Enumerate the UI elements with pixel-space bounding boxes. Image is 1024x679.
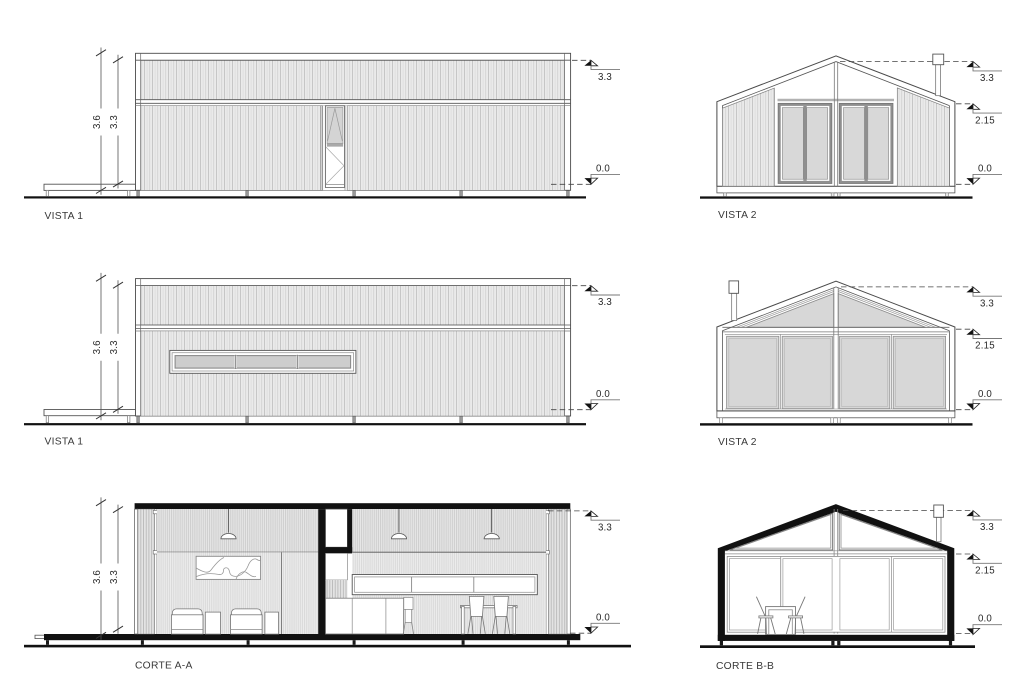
svg-text:CORTE A-A: CORTE A-A <box>135 661 193 672</box>
svg-text:CORTE B-B: CORTE B-B <box>716 661 774 672</box>
svg-text:VISTA 2: VISTA 2 <box>718 210 757 221</box>
svg-text:3.6: 3.6 <box>92 340 103 354</box>
svg-text:0.0: 0.0 <box>596 163 610 174</box>
svg-text:VISTA 1: VISTA 1 <box>45 437 84 448</box>
svg-text:3.6: 3.6 <box>92 115 103 129</box>
svg-text:3.6: 3.6 <box>92 570 103 584</box>
svg-text:0.0: 0.0 <box>596 612 610 623</box>
svg-text:3.3: 3.3 <box>598 72 612 83</box>
svg-text:3.3: 3.3 <box>980 522 994 533</box>
svg-text:0.0: 0.0 <box>978 389 992 400</box>
svg-text:VISTA 2: VISTA 2 <box>718 437 757 448</box>
svg-text:0.0: 0.0 <box>978 163 992 174</box>
svg-text:3.3: 3.3 <box>980 73 994 84</box>
svg-text:3.3: 3.3 <box>980 298 994 309</box>
svg-text:2.15: 2.15 <box>975 341 995 352</box>
svg-text:3.3: 3.3 <box>598 522 612 533</box>
svg-text:VISTA 1: VISTA 1 <box>45 211 84 222</box>
svg-text:0.0: 0.0 <box>596 389 610 400</box>
svg-text:3.3: 3.3 <box>109 570 120 584</box>
svg-text:2.15: 2.15 <box>975 115 995 126</box>
svg-text:3.3: 3.3 <box>598 297 612 308</box>
svg-text:3.3: 3.3 <box>109 340 120 354</box>
svg-text:0.0: 0.0 <box>978 614 992 625</box>
svg-text:2.15: 2.15 <box>975 566 995 577</box>
svg-text:3.3: 3.3 <box>109 115 120 129</box>
